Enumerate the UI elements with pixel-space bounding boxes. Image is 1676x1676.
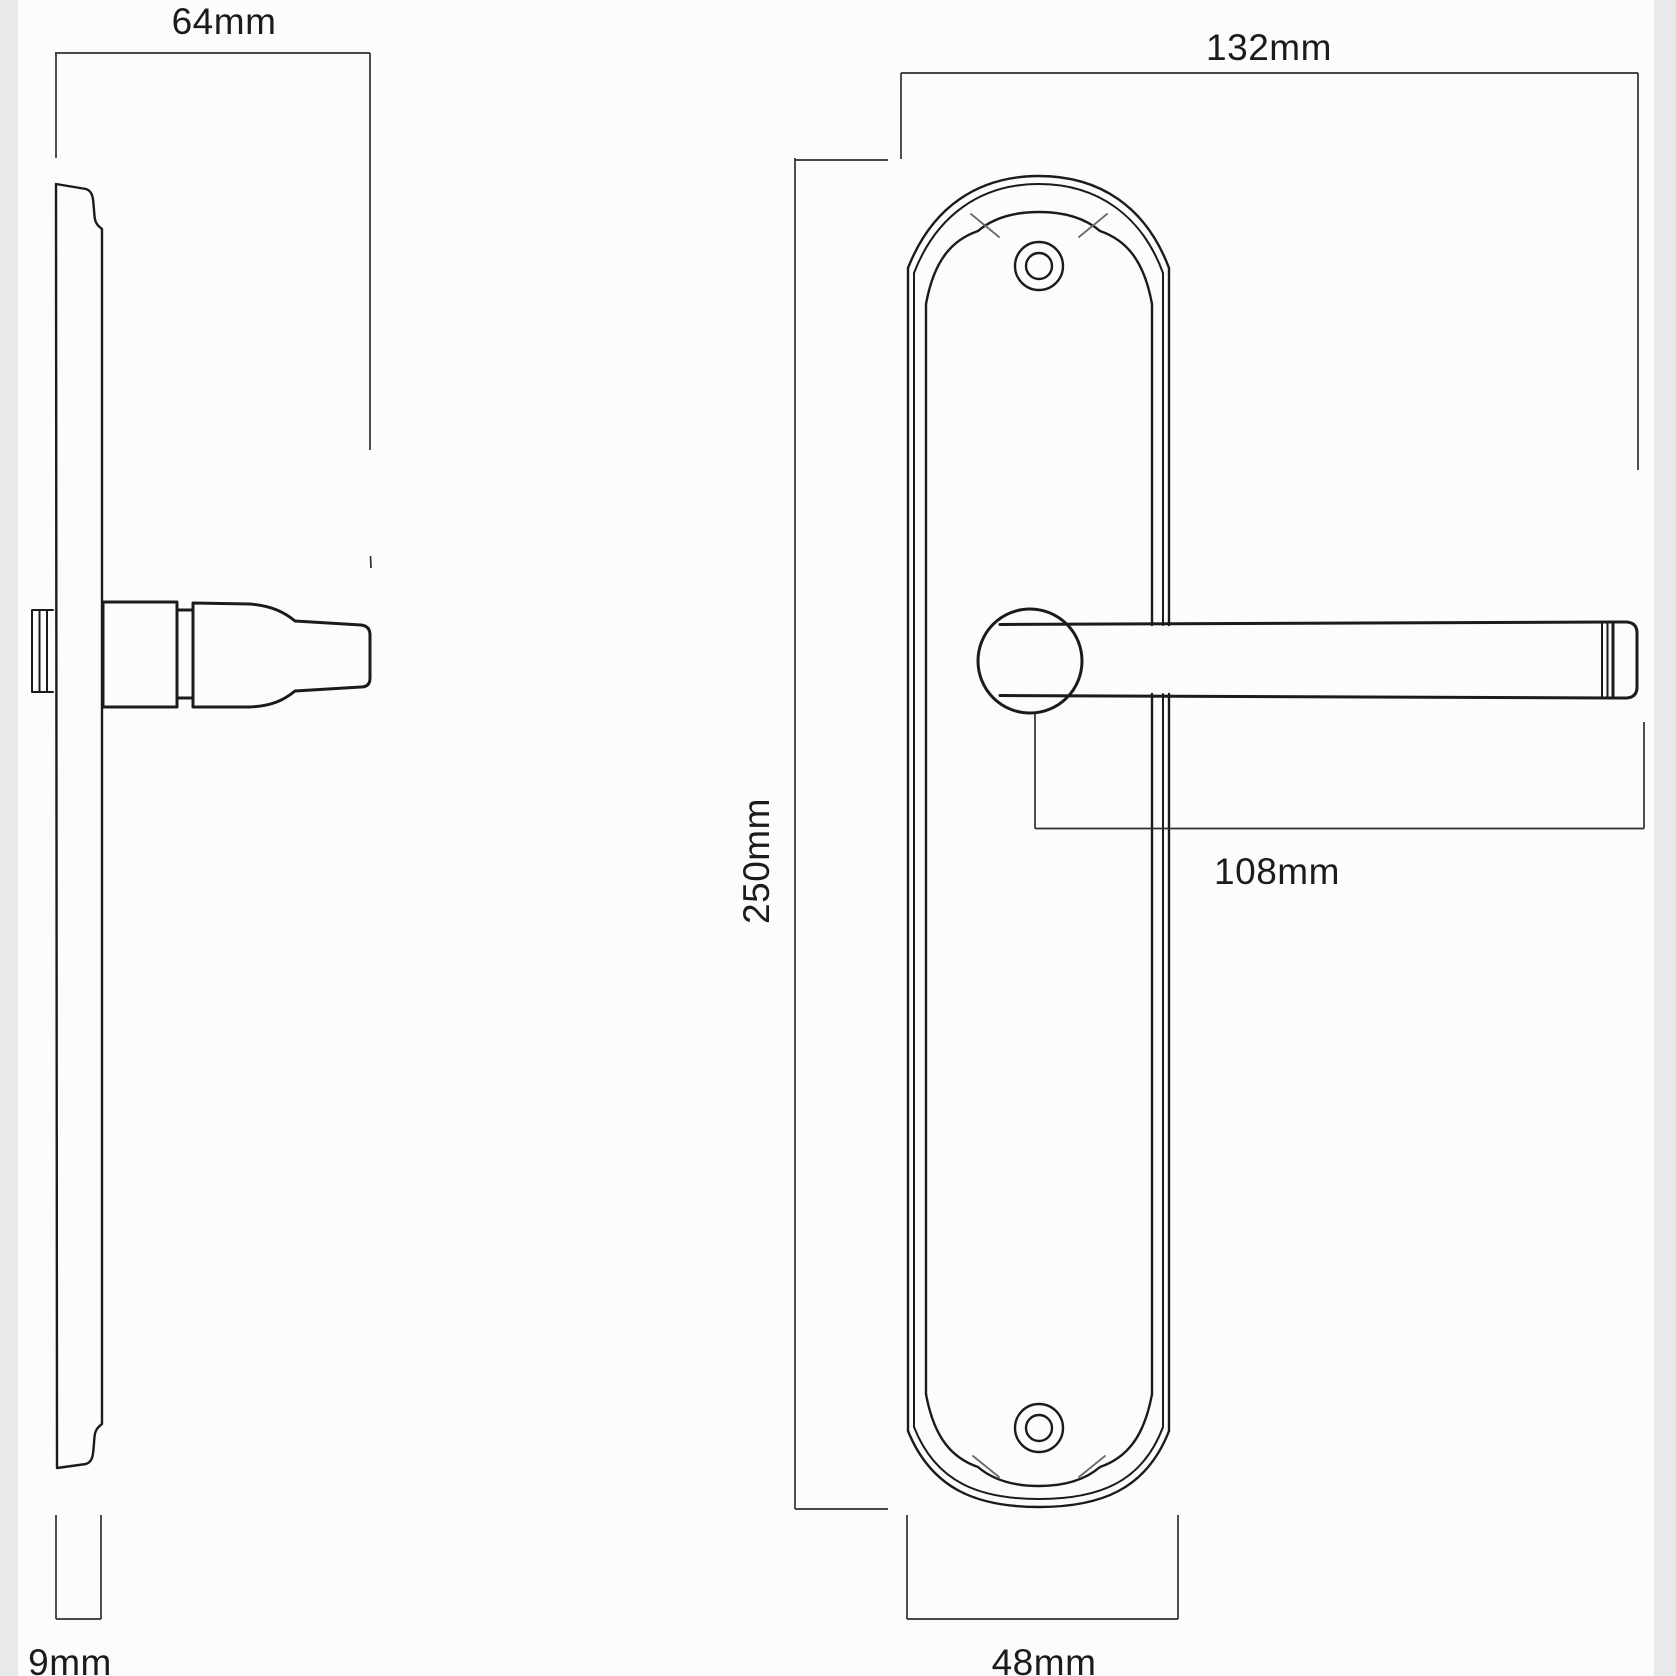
front-plate-bevel-top [914, 184, 1163, 273]
front-backplate [908, 176, 1169, 1507]
dim-250mm-ticks [795, 160, 888, 1509]
front-lever-arm-edges [1000, 622, 1613, 698]
side-view: 64mm 9mm [28, 1, 371, 1676]
bottom-screw-hole [1015, 1404, 1063, 1452]
side-backplate-profile [56, 184, 102, 1468]
dim-108mm-bracket [1035, 714, 1644, 829]
front-lever-tip-cap [1613, 622, 1637, 698]
dimension-plate-height-250mm: 250mm [736, 158, 888, 1509]
side-lever-handle [103, 602, 370, 707]
bottom-screw-hole-outer [1015, 1404, 1063, 1452]
side-spindle-cap [32, 610, 53, 692]
top-screw-hole-inner [1026, 253, 1052, 279]
dimension-lever-length-132mm: 132mm [901, 27, 1638, 470]
dim-132mm-label: 132mm [1206, 27, 1332, 68]
top-screw-hole [1015, 242, 1063, 290]
front-view: 132mm 250mm [736, 27, 1644, 1676]
dimension-handle-reach-108mm: 108mm [1035, 714, 1644, 892]
side-spindle-cap-outline [32, 610, 53, 692]
dim-9mm-label: 9mm [28, 1642, 112, 1676]
dimension-plate-thickness-9mm: 9mm [28, 1515, 112, 1676]
side-handle-collar [177, 610, 193, 698]
drawing-sheet: 64mm 9mm [0, 0, 1676, 1676]
front-plate-score-ticks [971, 214, 1107, 1477]
dim-64mm-label: 64mm [172, 1, 277, 42]
handle-dimension-drawing: 64mm 9mm [0, 0, 1676, 1676]
dim-64mm-extension-right [370, 53, 371, 568]
dim-48mm-bracket [907, 1515, 1178, 1619]
dim-9mm-bracket [56, 1515, 101, 1619]
side-handle-neck [103, 602, 177, 707]
top-screw-hole-outer [1015, 242, 1063, 290]
bottom-screw-hole-inner [1026, 1415, 1052, 1441]
front-lever-handle [978, 609, 1637, 713]
front-lever-tip-grooves [1602, 623, 1608, 698]
dim-48mm-label: 48mm [992, 1642, 1097, 1676]
side-lever-grip [193, 603, 370, 707]
dim-108mm-label: 108mm [1214, 851, 1340, 892]
side-spindle-cap-ridges [40, 610, 48, 692]
dim-250mm-label: 250mm [736, 798, 777, 924]
front-plate-outer-bottom-arch [908, 1431, 1169, 1507]
dimension-plate-width-48mm: 48mm [907, 1515, 1178, 1676]
